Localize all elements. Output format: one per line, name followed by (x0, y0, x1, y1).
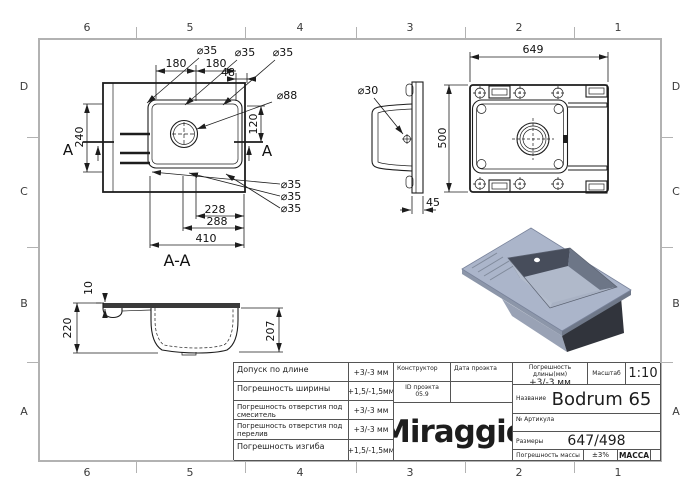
mass-tolerance-value: ±3% (584, 450, 618, 461)
dim-label: 410 (196, 232, 217, 245)
rim-band (103, 303, 240, 308)
dim-label: 120 (247, 114, 260, 135)
drawing-sheet: 6 5 4 3 2 1 6 5 4 3 2 1 D C B A D C B A (0, 0, 700, 500)
dim-label: ⌀30 (358, 84, 379, 97)
dim-label: 240 (73, 127, 86, 148)
length-tolerance-label: Погрешность длины(мм) (513, 364, 587, 378)
section-view: 10 220 207 (61, 281, 283, 355)
hole-label: ⌀35 (273, 46, 294, 59)
dim-label: 500 (436, 128, 449, 149)
sink-3d-render (462, 228, 631, 352)
title-block: Допуск по длине +3/-3 мм Погрешность шир… (233, 362, 660, 460)
dim-label: 45 (426, 196, 440, 209)
size-label: Размеры (516, 438, 543, 445)
side-view: ⌀30 45 (358, 82, 440, 214)
dim-label: 10 (82, 281, 95, 295)
mass-tolerance-label: Погрешность массы (513, 450, 584, 461)
hole-label: ⌀35 (197, 44, 218, 57)
sink-outline-back (470, 85, 608, 192)
hole-label: ⌀35 (281, 202, 302, 215)
mass-label: МАССА (618, 450, 651, 461)
tolerance-value: +1,5/-1,5мм (349, 440, 394, 461)
overflow-slot (563, 135, 568, 143)
project-id-label: ID проэкта (394, 384, 450, 391)
scale-label: Масштаб (588, 363, 626, 385)
empty-cell (651, 450, 661, 461)
designer-label: Конструктор (394, 363, 451, 382)
tolerance-label: Погрешность отверстия под перелив (234, 420, 349, 440)
dim-label: ⌀88 (277, 89, 298, 102)
tolerance-label: Погрешность изгиба (234, 440, 349, 461)
dim-label: 180 (166, 57, 187, 70)
back-view: 649 500 (436, 43, 608, 193)
dim-label: 207 (264, 321, 277, 342)
article-label: № Артикула (516, 416, 554, 423)
tolerance-value: +3/-3 мм (349, 420, 394, 440)
scale-value: 1:10 (626, 363, 661, 385)
tolerance-value: +3/-3 мм (349, 363, 394, 382)
tolerance-label: Погрешность ширины (234, 382, 349, 401)
dim-label: 288 (207, 215, 228, 228)
bowl-plateau (148, 100, 242, 168)
brand-logo: Miraggio (394, 403, 513, 461)
project-id-value: 05.9 (394, 391, 450, 398)
rim-profile (412, 82, 423, 193)
dim-label: 649 (523, 43, 544, 56)
tolerance-label: Погрешность отверстия под смеситель (234, 401, 349, 420)
tolerance-value: +1,5/-1,5мм (349, 382, 394, 401)
empty-cell (451, 382, 513, 403)
tolerance-label: Допуск по длине (234, 363, 349, 382)
bowl-section (151, 308, 238, 353)
project-date-label: Дата проэкта (451, 363, 513, 382)
dim-label: 220 (61, 318, 74, 339)
length-tolerance-value: +3/-3 мм (513, 378, 587, 385)
section-title: A-A (164, 251, 191, 270)
render-overflow-hole (534, 258, 540, 262)
hole-label: ⌀35 (235, 46, 256, 59)
name-label: Название (516, 395, 546, 402)
section-letter: A (262, 142, 273, 160)
tolerance-value: +3/-3 мм (349, 401, 394, 420)
top-view: A A 180 180 48 ⌀35 ⌀35 ⌀35 ⌀88 (63, 44, 301, 270)
